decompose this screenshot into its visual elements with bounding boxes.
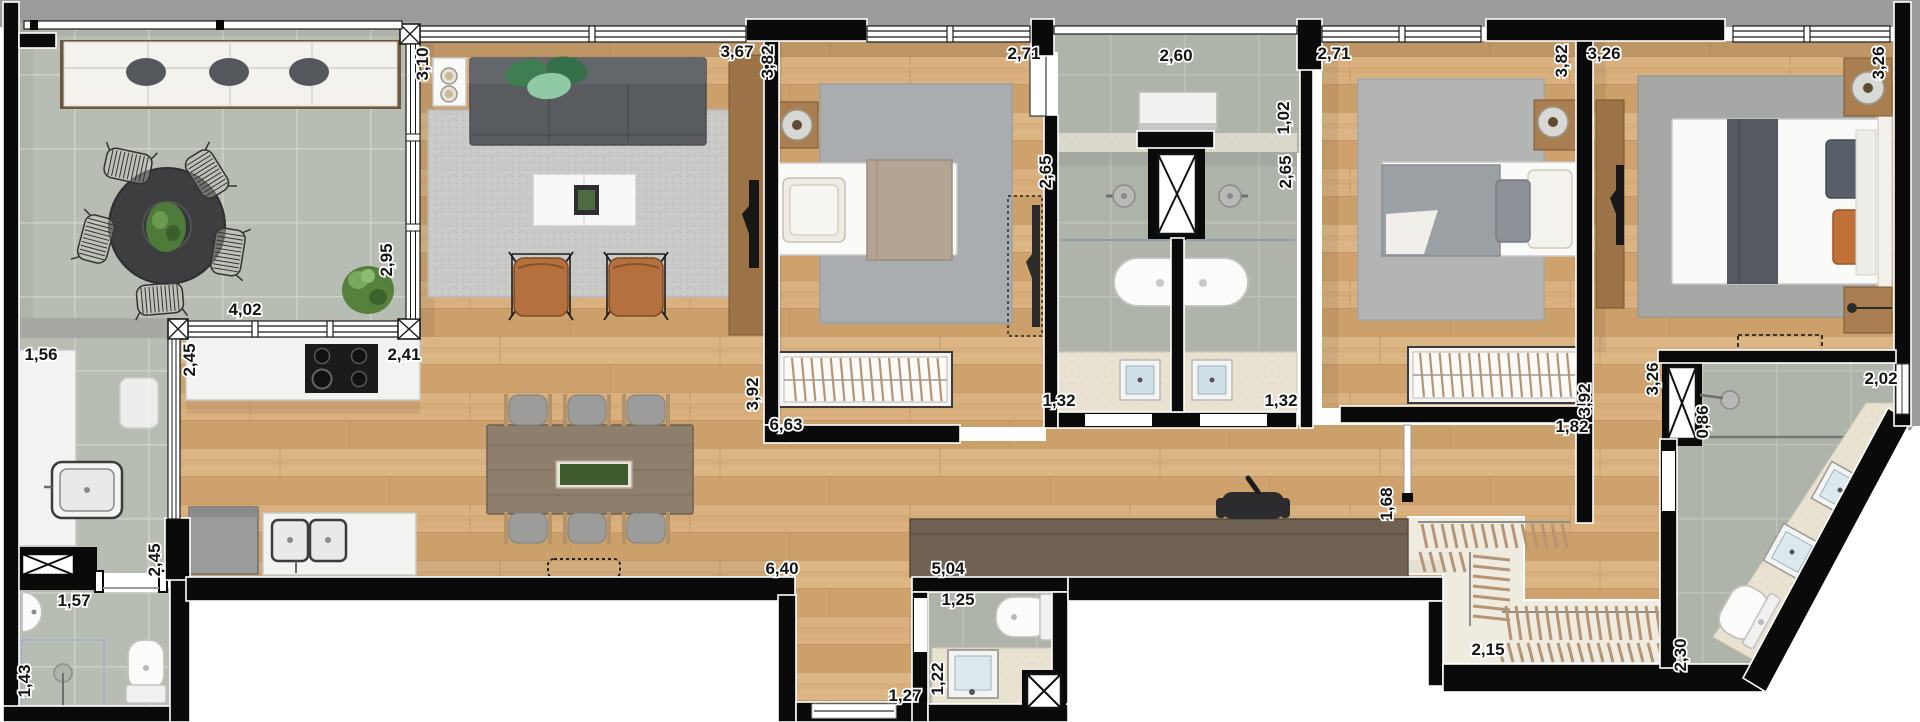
svg-text:1,27: 1,27 xyxy=(888,686,921,705)
svg-text:1,22: 1,22 xyxy=(928,662,947,695)
svg-text:1,32: 1,32 xyxy=(1042,391,1075,410)
svg-text:3,82: 3,82 xyxy=(758,45,777,78)
svg-text:3,26: 3,26 xyxy=(1643,362,1662,395)
svg-text:2,65: 2,65 xyxy=(1276,155,1295,188)
svg-text:0,86: 0,86 xyxy=(1693,405,1712,438)
svg-text:4,02: 4,02 xyxy=(228,300,261,319)
svg-text:1,02: 1,02 xyxy=(1274,101,1293,134)
svg-text:3,26: 3,26 xyxy=(1869,46,1888,79)
svg-text:2,95: 2,95 xyxy=(377,243,396,276)
svg-text:1,56: 1,56 xyxy=(24,345,57,364)
svg-text:2,02: 2,02 xyxy=(1864,369,1897,388)
svg-text:2,71: 2,71 xyxy=(1317,44,1350,63)
svg-text:3,10: 3,10 xyxy=(413,47,432,80)
svg-text:5,04: 5,04 xyxy=(931,559,965,578)
svg-text:2,15: 2,15 xyxy=(1471,640,1504,659)
svg-text:1,68: 1,68 xyxy=(1377,487,1396,520)
svg-text:6,40: 6,40 xyxy=(765,559,798,578)
svg-text:6,63: 6,63 xyxy=(769,415,802,434)
svg-text:2,65: 2,65 xyxy=(1036,155,1055,188)
svg-text:2,71: 2,71 xyxy=(1007,44,1040,63)
svg-text:2,45: 2,45 xyxy=(180,343,199,376)
svg-text:2,30: 2,30 xyxy=(1671,638,1690,671)
svg-text:3,92: 3,92 xyxy=(1575,383,1594,416)
svg-text:3,67: 3,67 xyxy=(720,42,753,61)
svg-text:2,60: 2,60 xyxy=(1159,46,1192,65)
svg-text:2,45: 2,45 xyxy=(145,543,164,576)
svg-text:2,41: 2,41 xyxy=(387,345,420,364)
svg-text:1,43: 1,43 xyxy=(15,664,34,697)
svg-text:1,57: 1,57 xyxy=(57,591,90,610)
svg-text:3,92: 3,92 xyxy=(743,377,762,410)
svg-text:3,26: 3,26 xyxy=(1587,44,1620,63)
svg-text:1,82: 1,82 xyxy=(1555,417,1588,436)
svg-text:1,32: 1,32 xyxy=(1264,391,1297,410)
svg-text:3,82: 3,82 xyxy=(1552,44,1571,77)
svg-text:1,25: 1,25 xyxy=(941,590,974,609)
